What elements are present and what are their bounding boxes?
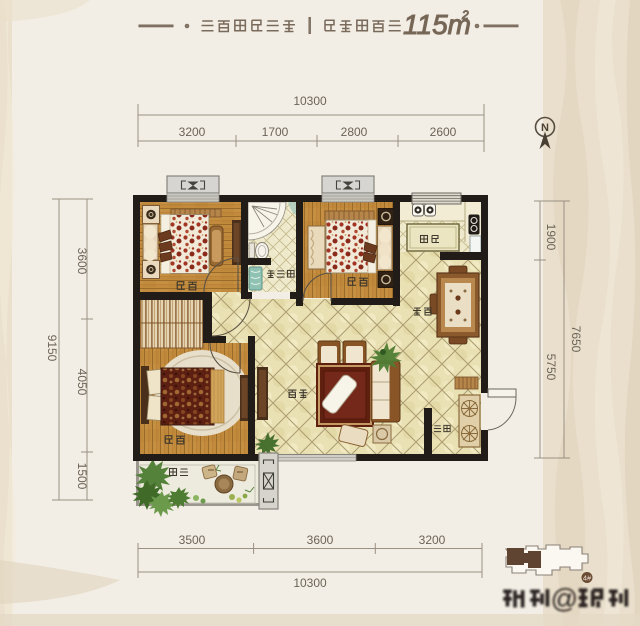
svg-text:5750: 5750 (544, 354, 558, 381)
svg-text:3500: 3500 (179, 533, 206, 547)
svg-text:2: 2 (461, 8, 469, 22)
svg-text:10300: 10300 (293, 94, 327, 108)
svg-text:3200: 3200 (179, 125, 206, 139)
svg-text:4050: 4050 (75, 369, 89, 396)
svg-text:2600: 2600 (430, 125, 457, 139)
svg-text:1900: 1900 (544, 224, 558, 251)
svg-text:2800: 2800 (341, 125, 368, 139)
svg-text:9150: 9150 (45, 335, 59, 362)
svg-text:4#: 4# (583, 574, 592, 583)
svg-text:10300: 10300 (293, 576, 327, 590)
svg-text:3200: 3200 (419, 533, 446, 547)
svg-text:1700: 1700 (262, 125, 289, 139)
svg-text:7650: 7650 (569, 326, 583, 353)
svg-text:@: @ (551, 584, 578, 614)
svg-text:3600: 3600 (307, 533, 334, 547)
svg-text:115m: 115m (403, 9, 471, 40)
svg-text:3600: 3600 (75, 248, 89, 275)
svg-text:1500: 1500 (75, 463, 89, 490)
